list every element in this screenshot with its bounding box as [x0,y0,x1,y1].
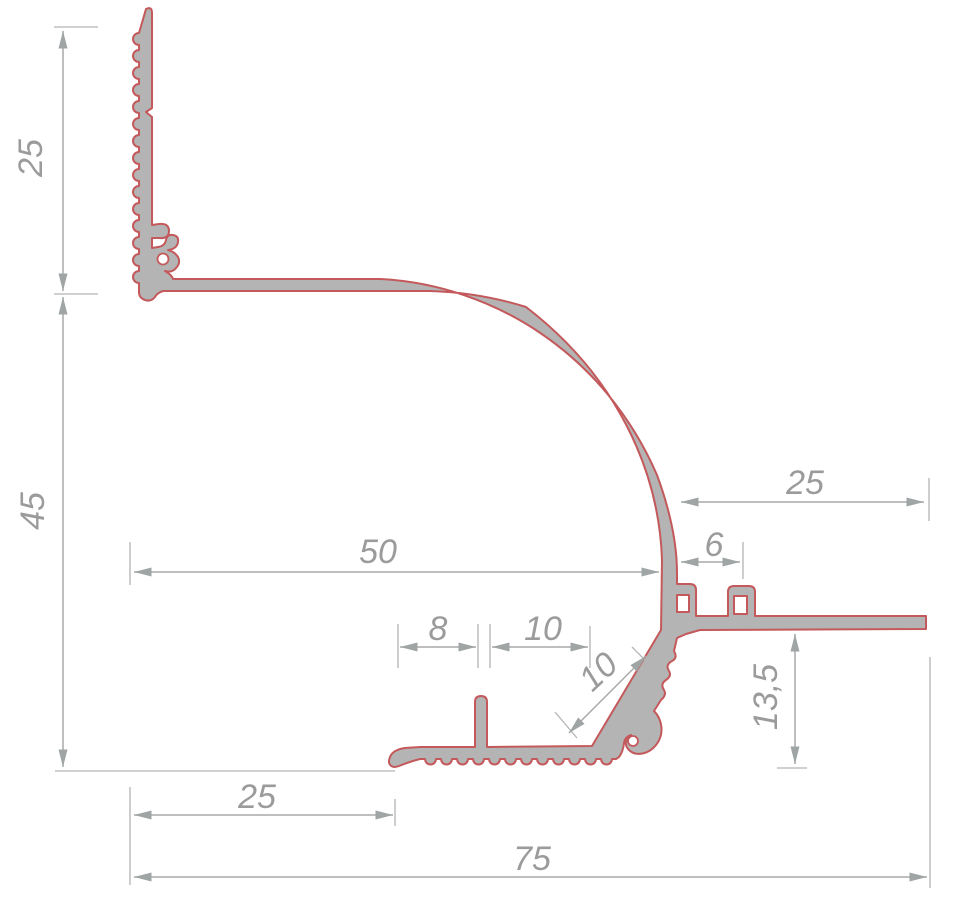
dim-label-inner-width: 50 [359,533,397,571]
extension-line [555,712,577,738]
dimension-base-left: 25 [134,778,393,816]
dim-label-left-height: 45 [14,492,52,530]
dim-label-hook-offset: 6 [705,526,724,564]
clip-opening [158,254,169,265]
dim-label-chamfer: 10 [572,645,626,699]
profile-shape [133,8,926,767]
profile-drawing-canvas: 25 45 50 25 6 8 10 10 13,5 25 75 [0,0,970,922]
dimension-right-top-width: 25 [681,464,924,502]
dim-label-right-top-width: 25 [785,464,824,502]
dimension-left-height: 45 [14,297,63,767]
dimension-base-a: 8 [400,610,476,648]
dim-label-left-top: 25 [12,139,50,178]
dimension-right-depth: 13,5 [747,634,795,764]
dimension-left-top: 25 [12,31,63,291]
profile-outline [133,8,926,767]
dim-label-right-depth: 13,5 [747,664,785,730]
curl-opening [628,736,638,746]
dim-label-base-a: 8 [429,610,448,648]
dimension-total-width: 75 [134,840,927,878]
dim-label-total-width: 75 [513,840,551,878]
dim-label-base-left: 25 [237,778,276,816]
dimension-hook-offset: 6 [681,526,740,564]
dimension-base-b: 10 [492,610,588,648]
dimension-inner-width: 50 [134,533,659,572]
dim-label-base-b: 10 [524,610,562,648]
